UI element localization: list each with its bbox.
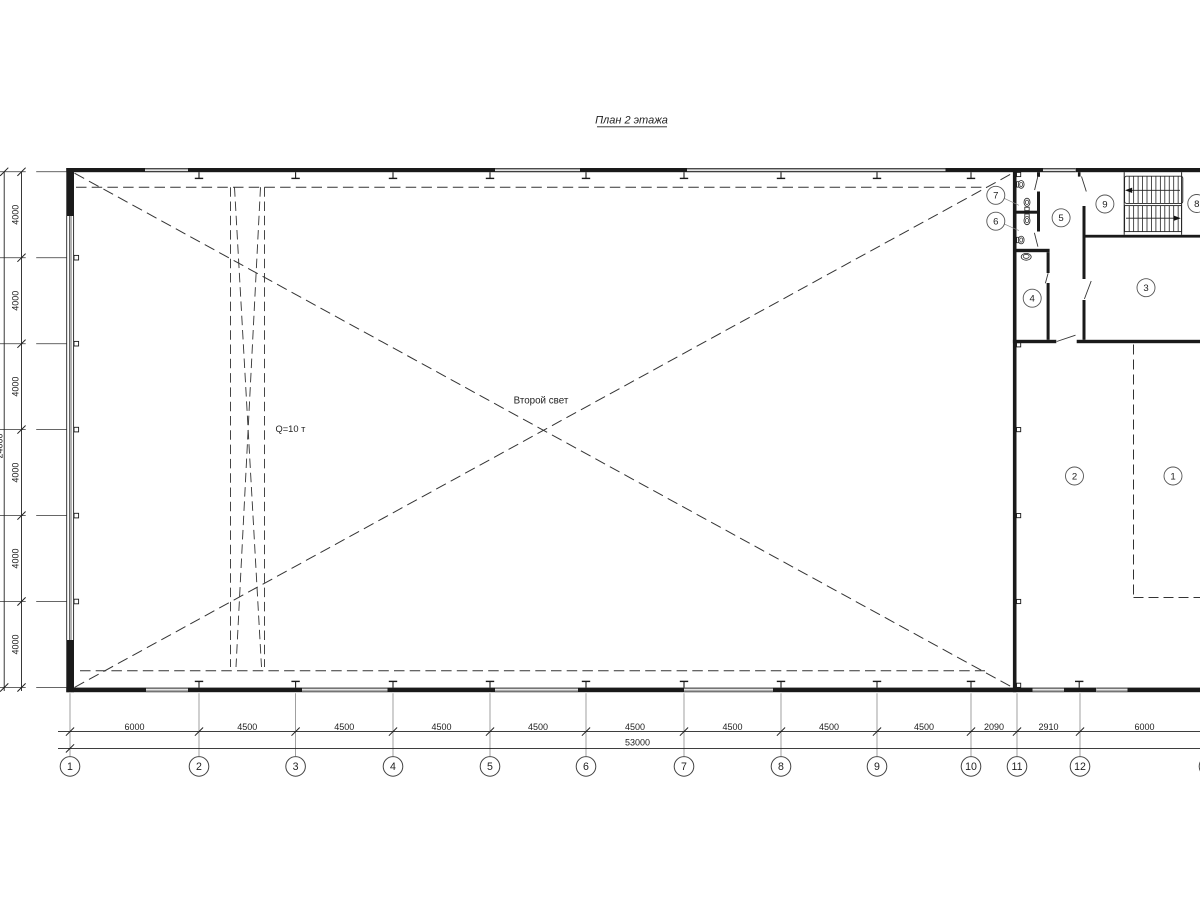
svg-text:Второй свет: Второй свет <box>514 396 569 407</box>
svg-text:4000: 4000 <box>11 377 21 397</box>
svg-text:6000: 6000 <box>124 722 144 732</box>
svg-text:4500: 4500 <box>722 722 742 732</box>
svg-text:2: 2 <box>1072 471 1077 482</box>
svg-text:9: 9 <box>874 761 880 773</box>
svg-text:2: 2 <box>196 761 202 773</box>
svg-text:8: 8 <box>1194 199 1199 210</box>
svg-text:5: 5 <box>1058 213 1063 224</box>
svg-text:4000: 4000 <box>11 463 21 483</box>
svg-text:9: 9 <box>1102 199 1107 210</box>
svg-text:План 2 этажа: План 2 этажа <box>595 115 668 127</box>
svg-text:11: 11 <box>1012 761 1023 773</box>
svg-text:4: 4 <box>390 761 396 773</box>
svg-text:7: 7 <box>993 191 998 202</box>
svg-text:24000: 24000 <box>0 433 5 458</box>
svg-text:53000: 53000 <box>625 738 650 748</box>
svg-text:8: 8 <box>778 761 784 773</box>
svg-text:2910: 2910 <box>1038 722 1058 732</box>
svg-text:1: 1 <box>1170 471 1175 482</box>
svg-text:4500: 4500 <box>334 722 354 732</box>
svg-text:4500: 4500 <box>431 722 451 732</box>
svg-text:4000: 4000 <box>11 205 21 225</box>
svg-text:4000: 4000 <box>11 549 21 569</box>
svg-text:6: 6 <box>993 217 998 228</box>
svg-text:3: 3 <box>293 761 299 773</box>
svg-text:2090: 2090 <box>984 722 1004 732</box>
svg-text:7: 7 <box>681 761 687 773</box>
svg-text:4000: 4000 <box>11 634 21 654</box>
svg-text:4500: 4500 <box>237 722 257 732</box>
svg-text:Q=10 т: Q=10 т <box>276 424 307 434</box>
svg-text:1: 1 <box>67 761 73 773</box>
svg-text:6000: 6000 <box>1134 722 1154 732</box>
svg-text:5: 5 <box>487 761 493 773</box>
svg-text:4500: 4500 <box>625 722 645 732</box>
svg-text:4000: 4000 <box>11 291 21 311</box>
svg-text:10: 10 <box>965 761 977 773</box>
svg-text:12: 12 <box>1074 761 1086 773</box>
svg-text:4: 4 <box>1030 294 1036 305</box>
svg-text:3: 3 <box>1143 283 1148 294</box>
svg-text:4500: 4500 <box>528 722 548 732</box>
svg-text:4500: 4500 <box>819 722 839 732</box>
svg-text:4500: 4500 <box>914 722 934 732</box>
svg-text:6: 6 <box>583 761 589 773</box>
